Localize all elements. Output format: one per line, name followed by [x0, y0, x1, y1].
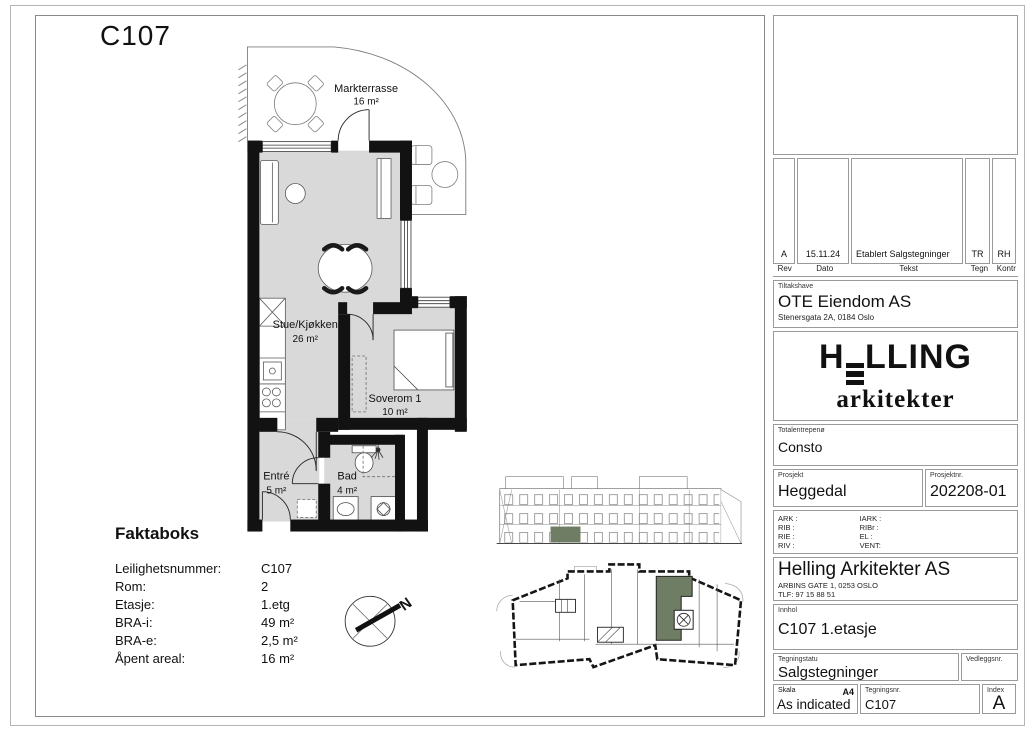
building-elevation [497, 477, 742, 544]
attachment-box: Vedleggsnr. [961, 653, 1018, 681]
outdoor-seating [411, 146, 458, 205]
terrace-table-set [266, 75, 324, 133]
faktaboks-row: Rom: 2 [115, 578, 375, 596]
client-label: Tiltakshave [774, 281, 1017, 291]
plan-title: C107 [100, 20, 171, 52]
bed-pillow [446, 333, 453, 387]
faktaboks-heading: Faktaboks [115, 524, 375, 544]
floor-keyplan [497, 564, 743, 667]
revision-header-row: Rev Dato Tekst Tegn Kontr [773, 264, 1018, 277]
dining-table [318, 244, 372, 292]
content-box: Innhol C107 1.etasje [773, 604, 1018, 650]
revision-cell-tegn: TR [965, 158, 990, 264]
north-label: N [397, 594, 416, 614]
entry-wardrobe-dashed [297, 500, 316, 518]
project-row: Prosjekt Heggedal Prosjektnr. 202208-01 [773, 469, 1018, 507]
drawing-no: C107 [861, 695, 979, 712]
architect-name: Helling Arkitekter AS [774, 558, 1017, 581]
consultants-left: ARK : RIB : RIE : RIV : [778, 514, 798, 550]
sheet-content: C107 1.etasje [774, 615, 1017, 639]
room-area-stue: 26 m² [293, 334, 319, 345]
client-name: OTE Eiendom AS [774, 291, 1017, 312]
project-box: Prosjekt Heggedal [773, 469, 923, 507]
room-area-soverom: 10 m² [382, 407, 408, 418]
room-area-bad: 4 m² [337, 486, 358, 497]
faktaboks-row: Åpent areal: 16 m² [115, 650, 375, 668]
status-row: Tegningstatu Salgstegninger Vedleggsnr. [773, 653, 1018, 681]
title-block: A 15.11.24 Etablert Salgstegninger TR RH… [773, 15, 1018, 714]
room-label-bad: Bad [337, 471, 357, 483]
drawing-sheet-page: Markterrasse 16 m² Stue/Kjøkken 26 m² So… [0, 0, 1032, 729]
floor-unit [371, 497, 396, 522]
room-label-markterrasse: Markterrasse [334, 83, 398, 95]
room-area-markterrasse: 16 m² [353, 97, 379, 108]
index-value: A [983, 693, 1015, 715]
contractor-box: Totalentrepenø Consto [773, 424, 1018, 466]
faktaboks: Faktaboks Leilighetsnummer: C107 Rom: 2 … [115, 524, 375, 668]
logo-wordmark: HLLING [819, 338, 972, 385]
scale-row: Skala A4 As indicated Tegningsnr. C107 I… [773, 684, 1018, 714]
architect-logo: HLLING arkitekter [773, 331, 1018, 421]
titleblock-empty-box [773, 15, 1018, 155]
room-area-entre: 5 m² [266, 486, 287, 497]
contractor-name: Consto [774, 435, 1017, 455]
architect-address: ARBINS GATE 1, 0253 OSLO [774, 581, 1017, 590]
kitchen-counter [259, 298, 285, 430]
revision-cell-rev: A [773, 158, 795, 264]
project-no: 202208-01 [926, 480, 1017, 501]
revision-cell-kontr: RH [992, 158, 1016, 264]
index-box: Index A [982, 684, 1016, 714]
room-label-stue: Stue/Kjøkken [273, 319, 338, 331]
client-address: Stenersgata 2A, 0184 Oslo [774, 312, 1017, 322]
coffee-table [285, 184, 305, 204]
toilet-tank [352, 446, 376, 453]
project-name: Heggedal [774, 480, 922, 501]
room-label-entre: Entré [263, 471, 289, 483]
client-box: Tiltakshave OTE Eiendom AS Stenersgata 2… [773, 280, 1018, 328]
room-label-soverom: Soverom 1 [369, 393, 422, 405]
scale-box: Skala A4 As indicated [773, 684, 858, 714]
paper-format: A4 [842, 687, 854, 697]
sofa [260, 161, 278, 225]
status-box: Tegningstatu Salgstegninger [773, 653, 959, 681]
faktaboks-row: BRA-i: 49 m² [115, 614, 375, 632]
consultants-box: ARK : RIB : RIE : RIV : IARK : RIBr : EL… [773, 510, 1018, 554]
consultants-right: IARK : RIBr : EL : VENT: [860, 514, 882, 550]
faktaboks-row: BRA-e: 2,5 m² [115, 632, 375, 650]
revision-cell-tekst: Etablert Salgstegninger [851, 158, 963, 264]
drawing-no-box: Tegningsnr. C107 [860, 684, 980, 714]
bed [394, 330, 454, 390]
architect-phone: TLF: 97 15 88 51 [774, 590, 1017, 599]
logo-subtitle: arkitekter [836, 386, 954, 414]
faktaboks-row: Etasje: 1.etg [115, 596, 375, 614]
tv-bench [377, 159, 391, 219]
revision-cell-dato: 15.11.24 [797, 158, 849, 264]
project-no-box: Prosjektnr. 202208-01 [925, 469, 1018, 507]
highlighted-unit-elevation [551, 527, 581, 543]
logo-e-glyph [846, 363, 864, 385]
faktaboks-row: Leilighetsnummer: C107 [115, 560, 375, 578]
drawing-status: Salgstegninger [774, 664, 958, 681]
toilet-bowl [355, 453, 373, 473]
revision-table: A 15.11.24 Etablert Salgstegninger TR RH… [773, 158, 1018, 277]
architect-firm-box: Helling Arkitekter AS ARBINS GATE 1, 025… [773, 557, 1018, 601]
scale-value: As indicated [774, 697, 857, 712]
